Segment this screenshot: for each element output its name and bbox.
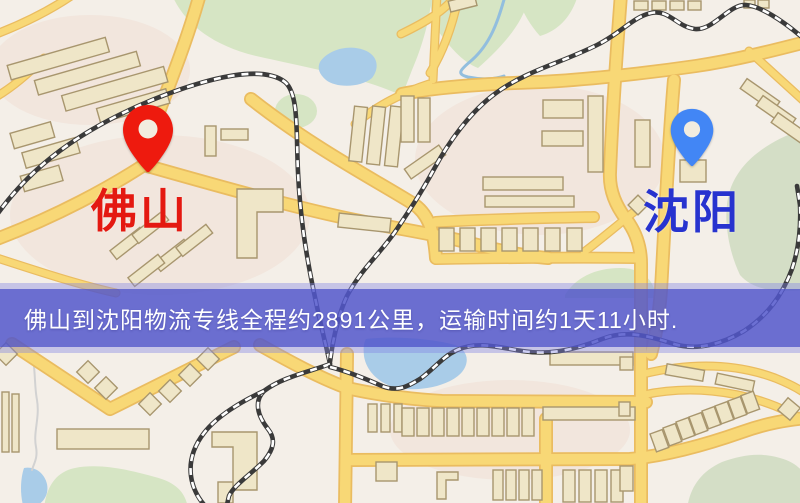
origin-label: 佛山	[91, 175, 189, 241]
destination-pin-icon[interactable]	[669, 108, 715, 166]
map-canvas[interactable]	[0, 0, 800, 503]
route-info-banner: 佛山到沈阳物流专线全程约2891公里，运输时间约1天11小时.	[0, 289, 800, 347]
destination-label: 沈阳	[643, 176, 741, 242]
map-view: 佛山 沈阳 佛山到沈阳物流专线全程约2891公里，运输时间约1天11小时.	[0, 0, 800, 503]
route-info-text: 佛山到沈阳物流专线全程约2891公里，运输时间约1天11小时.	[0, 301, 678, 335]
origin-pin-icon[interactable]	[121, 104, 175, 172]
